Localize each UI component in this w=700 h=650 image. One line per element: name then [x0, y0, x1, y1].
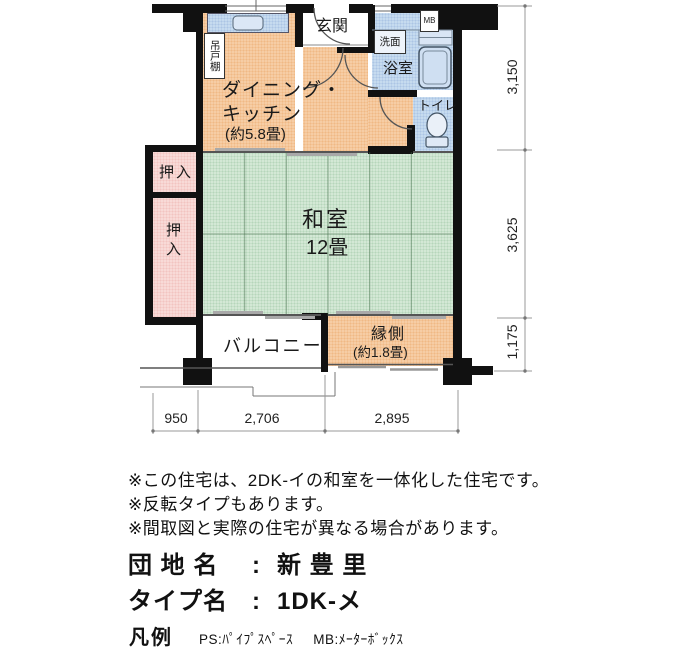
- dk-label-size: (約5.8畳): [225, 127, 286, 142]
- legend-ps: PS:ﾊﾟｲﾌﾟｽﾍﾟｰｽ: [199, 628, 293, 648]
- legend-mb: MB:ﾒｰﾀｰﾎﾞｯｸｽ: [313, 628, 403, 648]
- bathroom-label: 浴室: [383, 61, 413, 76]
- hanging-cupboard-label: 吊戸棚: [209, 40, 220, 72]
- legend-row: 凡例 PS:ﾊﾟｲﾌﾟｽﾍﾟｰｽ MB:ﾒｰﾀｰﾎﾞｯｸｽ: [129, 621, 404, 650]
- engawa-size-label: (約1.8畳): [353, 346, 408, 360]
- note-line-2: ※反転タイプもあります。: [128, 493, 549, 517]
- notes-block: ※この住宅は、2DK-イの和室を一体化した住宅です。 ※反転タイプもあります。 …: [128, 469, 549, 541]
- tatami-grid: [203, 152, 453, 316]
- washitsu-label: 和室: [302, 209, 350, 231]
- meter-box: MB: [420, 10, 439, 32]
- dk-label-line2: キッチン: [222, 105, 302, 124]
- balcony-outline: [140, 368, 335, 396]
- danchi-name-label: 団 地 名: [128, 545, 242, 580]
- toilet-tank-icon: [426, 137, 448, 147]
- type-name-label: タイプ名: [128, 581, 242, 616]
- hanging-cupboard-box: 吊戸棚: [204, 33, 225, 79]
- danchi-name-row: 団 地 名 : 新 豊 里: [128, 545, 367, 580]
- bathroom-door-arc: [345, 55, 378, 88]
- closet-upper-label: 押入: [159, 165, 193, 180]
- dim-bottom-2706: 2,706: [222, 410, 302, 426]
- engawa-label: 縁側: [371, 327, 405, 343]
- dim-bottom-950: 950: [136, 410, 216, 426]
- window-lines: [225, 0, 391, 11]
- kitchen-sink-icon: [233, 16, 263, 30]
- legend-title: 凡例: [129, 621, 173, 650]
- dim-right-1175: 1,175: [504, 312, 520, 372]
- dim-bottom-2895: 2,895: [352, 410, 432, 426]
- toilet-door-arc: [380, 97, 412, 129]
- dim-right-3150: 3,150: [504, 47, 520, 107]
- toilet-bowl-icon: [427, 113, 447, 137]
- washitsu-size-label: 12畳: [306, 238, 348, 258]
- danchi-name-separator: :: [252, 552, 261, 580]
- floor-plan-page: MB 吊戸棚 洗面 ダイニング・ キッチン (約5.8畳) 和室 12畳 玄関 …: [0, 0, 700, 650]
- washstand-label: 洗面: [380, 37, 401, 48]
- type-name-row: タイプ名 : 1DK-メ: [128, 581, 362, 616]
- dk-label-line1: ダイニング・: [222, 81, 342, 100]
- washstand-box: 洗面: [374, 30, 406, 54]
- balcony-label: バルコニー: [223, 337, 323, 355]
- note-line-3: ※間取図と実際の住宅が異なる場合があります。: [128, 517, 549, 541]
- dim-right-3625: 3,625: [504, 205, 520, 265]
- toilet-label: トイレ: [418, 99, 457, 112]
- type-name-value: 1DK-メ: [277, 581, 362, 616]
- danchi-name-value: 新 豊 里: [277, 545, 367, 580]
- closet-lower-label: 押入: [165, 222, 180, 260]
- meter-box-label: MB: [424, 17, 436, 25]
- note-line-1: ※この住宅は、2DK-イの和室を一体化した住宅です。: [128, 469, 549, 493]
- type-name-separator: :: [252, 588, 261, 616]
- genkan-label: 玄関: [316, 19, 348, 35]
